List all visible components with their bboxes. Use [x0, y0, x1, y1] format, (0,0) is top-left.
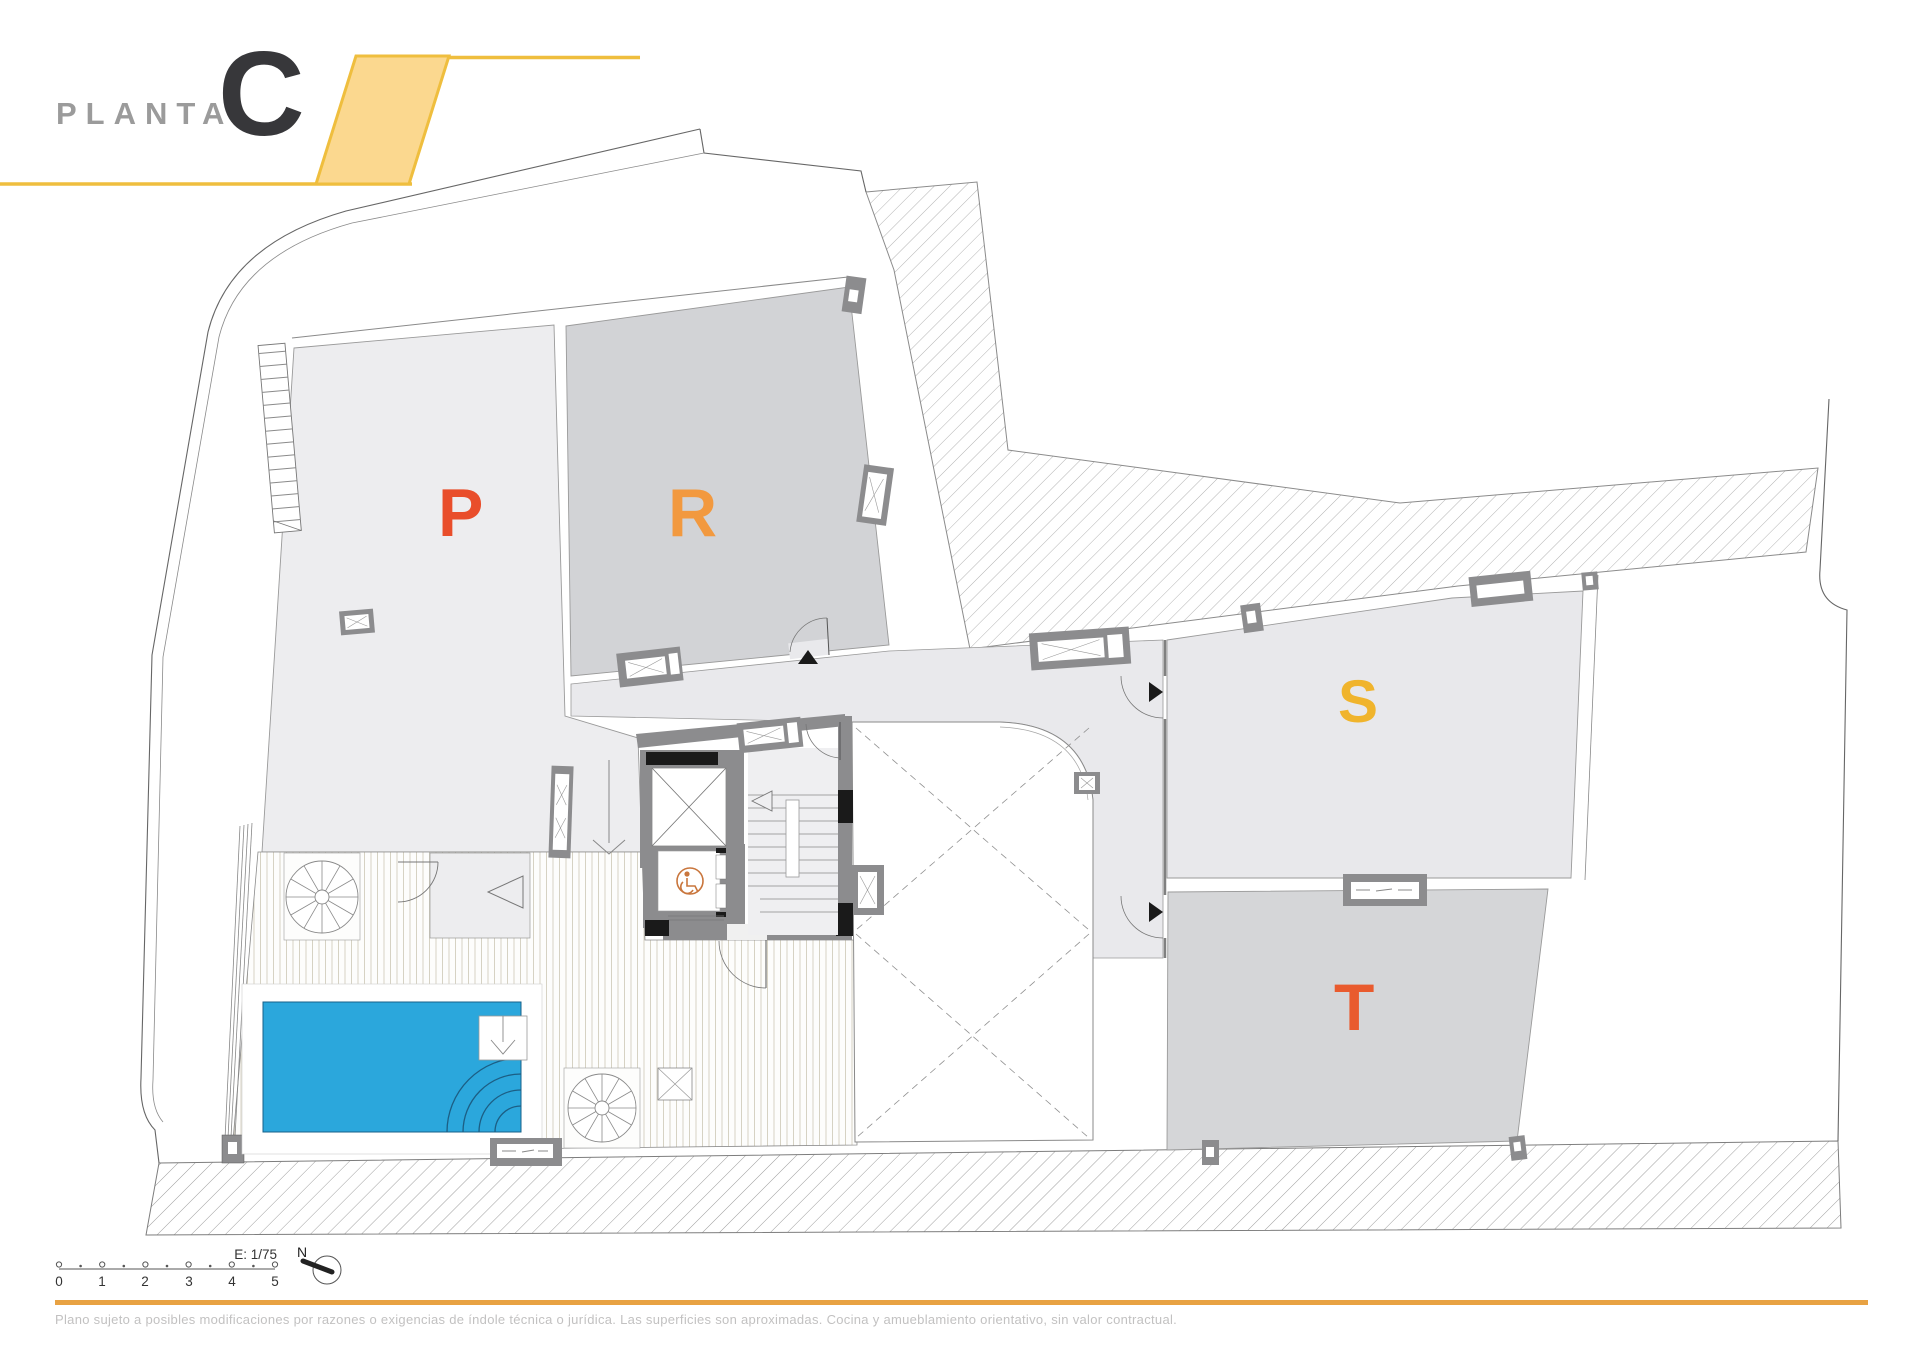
wall-pier: [1240, 603, 1264, 634]
void-area: [852, 722, 1093, 1142]
disclaimer-text: Plano sujeto a posibles modificaciones p…: [55, 1312, 1855, 1327]
shaft-wall-black: [646, 752, 718, 765]
scale-mark: 4: [222, 1274, 242, 1289]
page-title: PLANTA: [56, 96, 233, 132]
staircase: [748, 748, 838, 935]
pool-stair-box: [479, 1016, 527, 1060]
corridor-window: [616, 646, 683, 687]
north-label: N: [297, 1244, 307, 1260]
wall-pier: [1202, 1140, 1219, 1165]
room-s-east-boundary: [1585, 575, 1598, 880]
core-window: [737, 717, 804, 754]
north-arrow-icon: [303, 1256, 341, 1284]
neighbour-hatch: [866, 182, 1818, 649]
room-label-r: R: [668, 479, 717, 547]
deck-vent: [658, 1068, 692, 1100]
vent-window: [339, 609, 375, 636]
window: [490, 1138, 562, 1166]
room-label-t: T: [1334, 974, 1374, 1040]
wall-pier: [842, 276, 867, 314]
corridor-west-window: [548, 766, 573, 859]
room-label-p: P: [438, 479, 483, 547]
scale-mark: 2: [135, 1274, 155, 1289]
room-r-area: [566, 287, 889, 676]
scale-mark: 0: [49, 1274, 69, 1289]
spiral-staircase-icon: [564, 1068, 640, 1148]
wall-pier: [1509, 1135, 1528, 1161]
room-label-s: S: [1338, 672, 1378, 732]
window: [1343, 874, 1427, 906]
floor-letter: C: [218, 34, 305, 154]
elevator-cab: [658, 851, 720, 911]
scale-label: E: 1/75: [193, 1247, 277, 1262]
corridor-window: [1029, 627, 1131, 671]
floor-plan-page: PLANTA C P R S T E: 1/75 N 0 1 2 3 4 5 P…: [0, 0, 1920, 1357]
scale-bar: [56, 1262, 277, 1269]
wall-pier: [1581, 571, 1599, 590]
scale-mark: 1: [92, 1274, 112, 1289]
accent-rule: [55, 1300, 1868, 1305]
fence-pier-hole: [228, 1142, 237, 1154]
scale-mark: 3: [179, 1274, 199, 1289]
void-vent: [1074, 772, 1100, 794]
floor-plan-drawing: [0, 0, 1920, 1357]
scale-mark: 5: [265, 1274, 285, 1289]
shaft-vent: [851, 865, 884, 915]
spiral-staircase-icon: [284, 853, 360, 940]
street-hatch: [146, 1141, 1841, 1235]
